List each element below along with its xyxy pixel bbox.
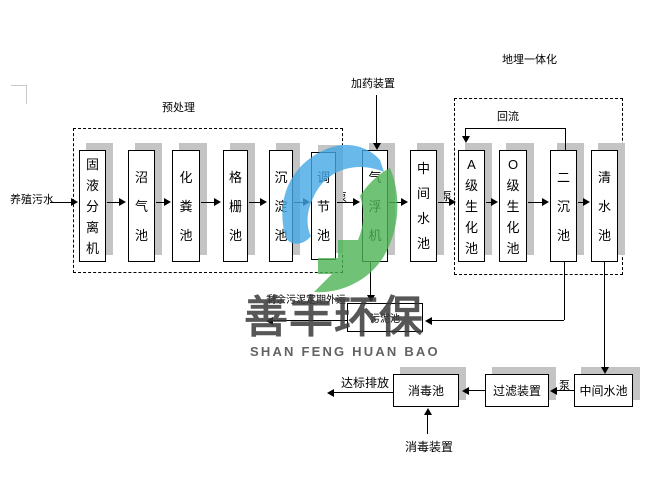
arrowhead [601,367,609,374]
tank-air-flotation[interactable]: 气浮机 [362,150,388,262]
arrowhead [71,198,78,206]
arrowhead [119,198,126,206]
tank-label: 中间水池 [579,382,627,399]
tank-disinfection[interactable]: 消毒池 [393,374,459,407]
arrow-obio-to-secondary [528,202,542,203]
line-sludge-out [273,320,347,321]
line-clean-to-intermediate2 [604,262,605,367]
arrowhead [424,408,432,415]
tank-label: 中间水池 [417,156,431,256]
arrow-regulating-to-airflotation [337,202,353,203]
sludge-note-label: 剩余污泥定期外运 [266,291,346,306]
arrowhead [214,198,221,206]
arrow-biogas-to-septic [156,202,164,203]
arrowhead [583,198,590,206]
tank-septic[interactable]: 化粪池 [172,150,200,262]
arrowhead [327,389,334,397]
tank-grid[interactable]: 格栅池 [223,150,248,262]
arrow-intermediate1-to-abio [438,202,449,203]
arrow-sedimentation-to-regulating [294,202,303,203]
arrowhead [303,198,310,206]
arrowhead [164,198,171,206]
arrowhead [373,143,381,150]
tank-label: A级生化池 [465,154,479,259]
tank-label: 沼气池 [135,163,149,250]
arrowhead [550,387,557,395]
arrow-device-to-disinfection [427,415,428,434]
tank-secondary-sedimentation[interactable]: 二沉池 [550,150,577,262]
tank-label: 清水池 [598,163,612,250]
arrow-airflotation-to-intermediate1 [389,202,401,203]
tank-sludge[interactable]: 污泥池 [347,303,423,332]
arrow-septic-to-grid [201,202,214,203]
tank-intermediate-1[interactable]: 中间水池 [410,150,437,262]
buried-integration-label: 地埋一体化 [502,51,557,67]
brand-name-en: SHAN FENG HUAN BAO [250,344,440,359]
tank-label: 调节池 [317,163,331,250]
discharge-label: 达标排放 [341,374,389,391]
tank-label: 过滤装置 [493,382,541,399]
arrowhead [462,136,470,143]
arrowhead [491,198,498,206]
tank-regulating[interactable]: 调节池 [311,152,336,260]
arrow-separator-to-biogas [107,202,119,203]
disinfection-device-label: 消毒装置 [405,438,453,455]
tank-label: 格栅池 [229,163,243,250]
page-corner-mark [11,85,27,86]
tank-label: O级生化池 [506,154,520,259]
arrow-source-to-separator [50,202,71,203]
tank-clean-water[interactable]: 清水池 [591,150,618,262]
dosing-device-label: 加药装置 [351,75,395,91]
arrowhead [367,295,375,302]
tank-label: 污泥池 [370,310,400,325]
tank-label: 气浮机 [368,163,382,250]
line-secondary-down [564,262,565,320]
line-airflotation-to-sludge [370,262,371,296]
tank-biogas[interactable]: 沼气池 [128,150,155,262]
arrowhead [425,317,432,325]
tank-label: 化粪池 [179,163,193,250]
tank-sedimentation[interactable]: 沉淀池 [269,150,293,262]
arrowhead [260,198,267,206]
arrowhead [449,198,456,206]
tank-solid-liquid-separator[interactable]: 固液分离机 [79,150,106,262]
process-flow-diagram: 养殖污水 预处理 加药装置 地埋一体化 回流 剩余污泥定期外运 达标排放 消毒装… [0,0,650,500]
pretreatment-label: 预处理 [162,99,195,115]
page-corner-mark [26,85,27,104]
tank-a-level-bio[interactable]: A级生化池 [458,150,485,262]
tank-label: 消毒池 [408,382,444,399]
arrowhead [266,317,273,325]
arrowhead [353,198,360,206]
arrow-dosing-to-airflotation [376,95,377,143]
reflux-label: 回流 [497,108,519,124]
tank-label: 沉淀池 [274,163,288,250]
line-secondary-to-sludge [432,320,564,321]
arrowhead [542,198,549,206]
reflux-line-across [465,128,565,129]
arrow-filter-to-disinfection [469,390,485,391]
arrowhead [401,198,408,206]
tank-filter-device[interactable]: 过滤装置 [485,374,549,407]
arrow-discharge [334,392,393,393]
tank-intermediate-2[interactable]: 中间水池 [574,374,633,407]
source-label: 养殖污水 [10,191,54,207]
reflux-line-up [565,128,566,151]
tank-label: 二沉池 [557,163,571,250]
arrow-grid-to-sedimentation [249,202,260,203]
tank-o-level-bio[interactable]: O级生化池 [499,150,527,262]
arrowhead [462,387,469,395]
tank-label: 固液分离机 [86,154,100,259]
arrow-intermediate2-to-filter [557,390,574,391]
